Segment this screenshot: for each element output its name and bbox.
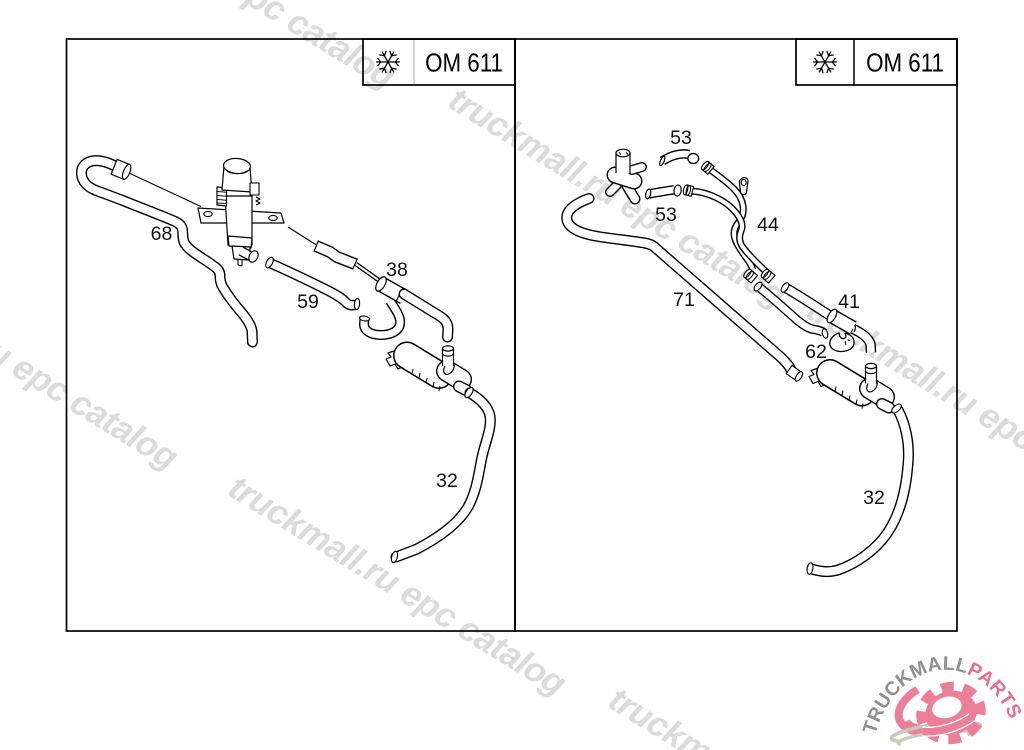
svg-text:53: 53	[670, 127, 692, 149]
svg-text:truckmall.ru epc catalog: truckmall.ru epc catalog	[222, 468, 573, 704]
svg-text:59: 59	[297, 291, 319, 313]
svg-text:OM 611: OM 611	[425, 49, 503, 78]
svg-text:71: 71	[673, 289, 695, 311]
svg-text:truckmall.ru epc catalog: truckmall.ru epc catalog	[51, 0, 402, 97]
svg-text:68: 68	[151, 223, 173, 245]
svg-text:truckmall.ru epc catalog: truckmall.ru epc catalog	[0, 242, 185, 478]
svg-text:32: 32	[863, 487, 885, 509]
svg-text:62: 62	[805, 341, 827, 363]
svg-text:OM 611: OM 611	[866, 49, 944, 78]
svg-text:53: 53	[655, 204, 677, 226]
svg-text:44: 44	[757, 214, 779, 236]
svg-text:38: 38	[386, 259, 408, 281]
svg-text:32: 32	[436, 470, 458, 492]
svg-text:41: 41	[838, 291, 860, 313]
